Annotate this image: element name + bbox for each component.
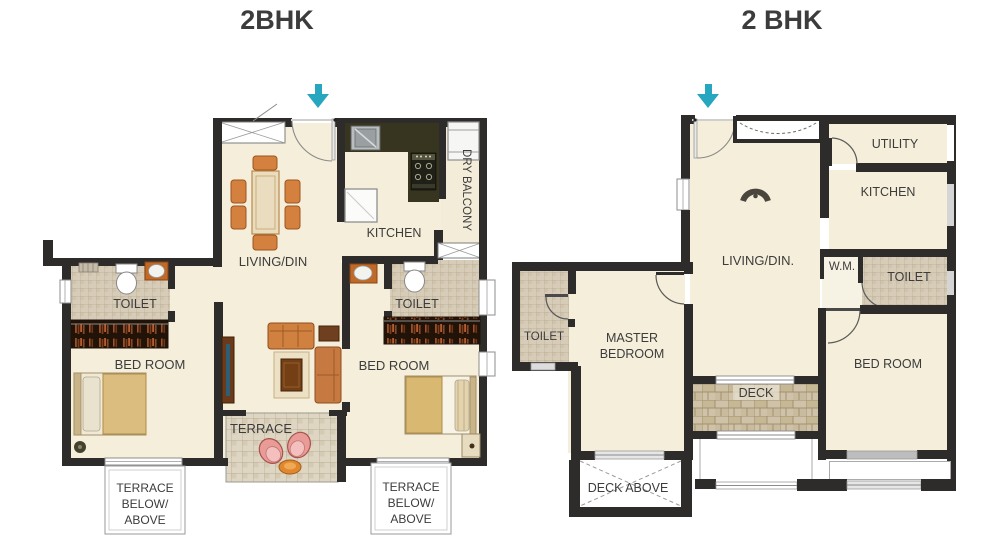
svg-text:2 BHK: 2 BHK (741, 5, 823, 35)
svg-text:DECK ABOVE: DECK ABOVE (588, 481, 669, 495)
svg-text:TOILET: TOILET (524, 331, 564, 343)
svg-text:TERRACE: TERRACE (116, 481, 173, 495)
svg-text:ABOVE: ABOVE (390, 512, 431, 526)
svg-text:KITCHEN: KITCHEN (861, 185, 916, 199)
svg-text:TOILET: TOILET (113, 297, 157, 311)
svg-text:TERRACE: TERRACE (382, 480, 439, 494)
svg-text:LIVING/DIN: LIVING/DIN (239, 254, 308, 269)
svg-text:BED ROOM: BED ROOM (115, 357, 186, 372)
svg-text:BEDROOM: BEDROOM (600, 347, 665, 361)
svg-text:BED ROOM: BED ROOM (359, 358, 430, 373)
svg-text:KITCHEN: KITCHEN (367, 226, 422, 240)
svg-text:BED ROOM: BED ROOM (854, 357, 922, 371)
svg-text:W.M.: W.M. (829, 261, 855, 273)
svg-text:2BHK: 2BHK (240, 5, 314, 35)
svg-text:TOILET: TOILET (887, 270, 931, 284)
svg-text:BELOW/: BELOW/ (122, 497, 169, 511)
svg-text:DECK: DECK (739, 386, 774, 400)
svg-text:DRY BALCONY: DRY BALCONY (460, 149, 472, 231)
svg-text:LIVING/DIN.: LIVING/DIN. (722, 253, 794, 268)
svg-text:MASTER: MASTER (606, 331, 658, 345)
svg-text:BELOW/: BELOW/ (388, 496, 435, 510)
svg-text:TOILET: TOILET (395, 297, 439, 311)
svg-text:TERRACE: TERRACE (230, 421, 292, 436)
svg-text:ABOVE: ABOVE (124, 513, 165, 527)
svg-text:UTILITY: UTILITY (872, 137, 919, 151)
